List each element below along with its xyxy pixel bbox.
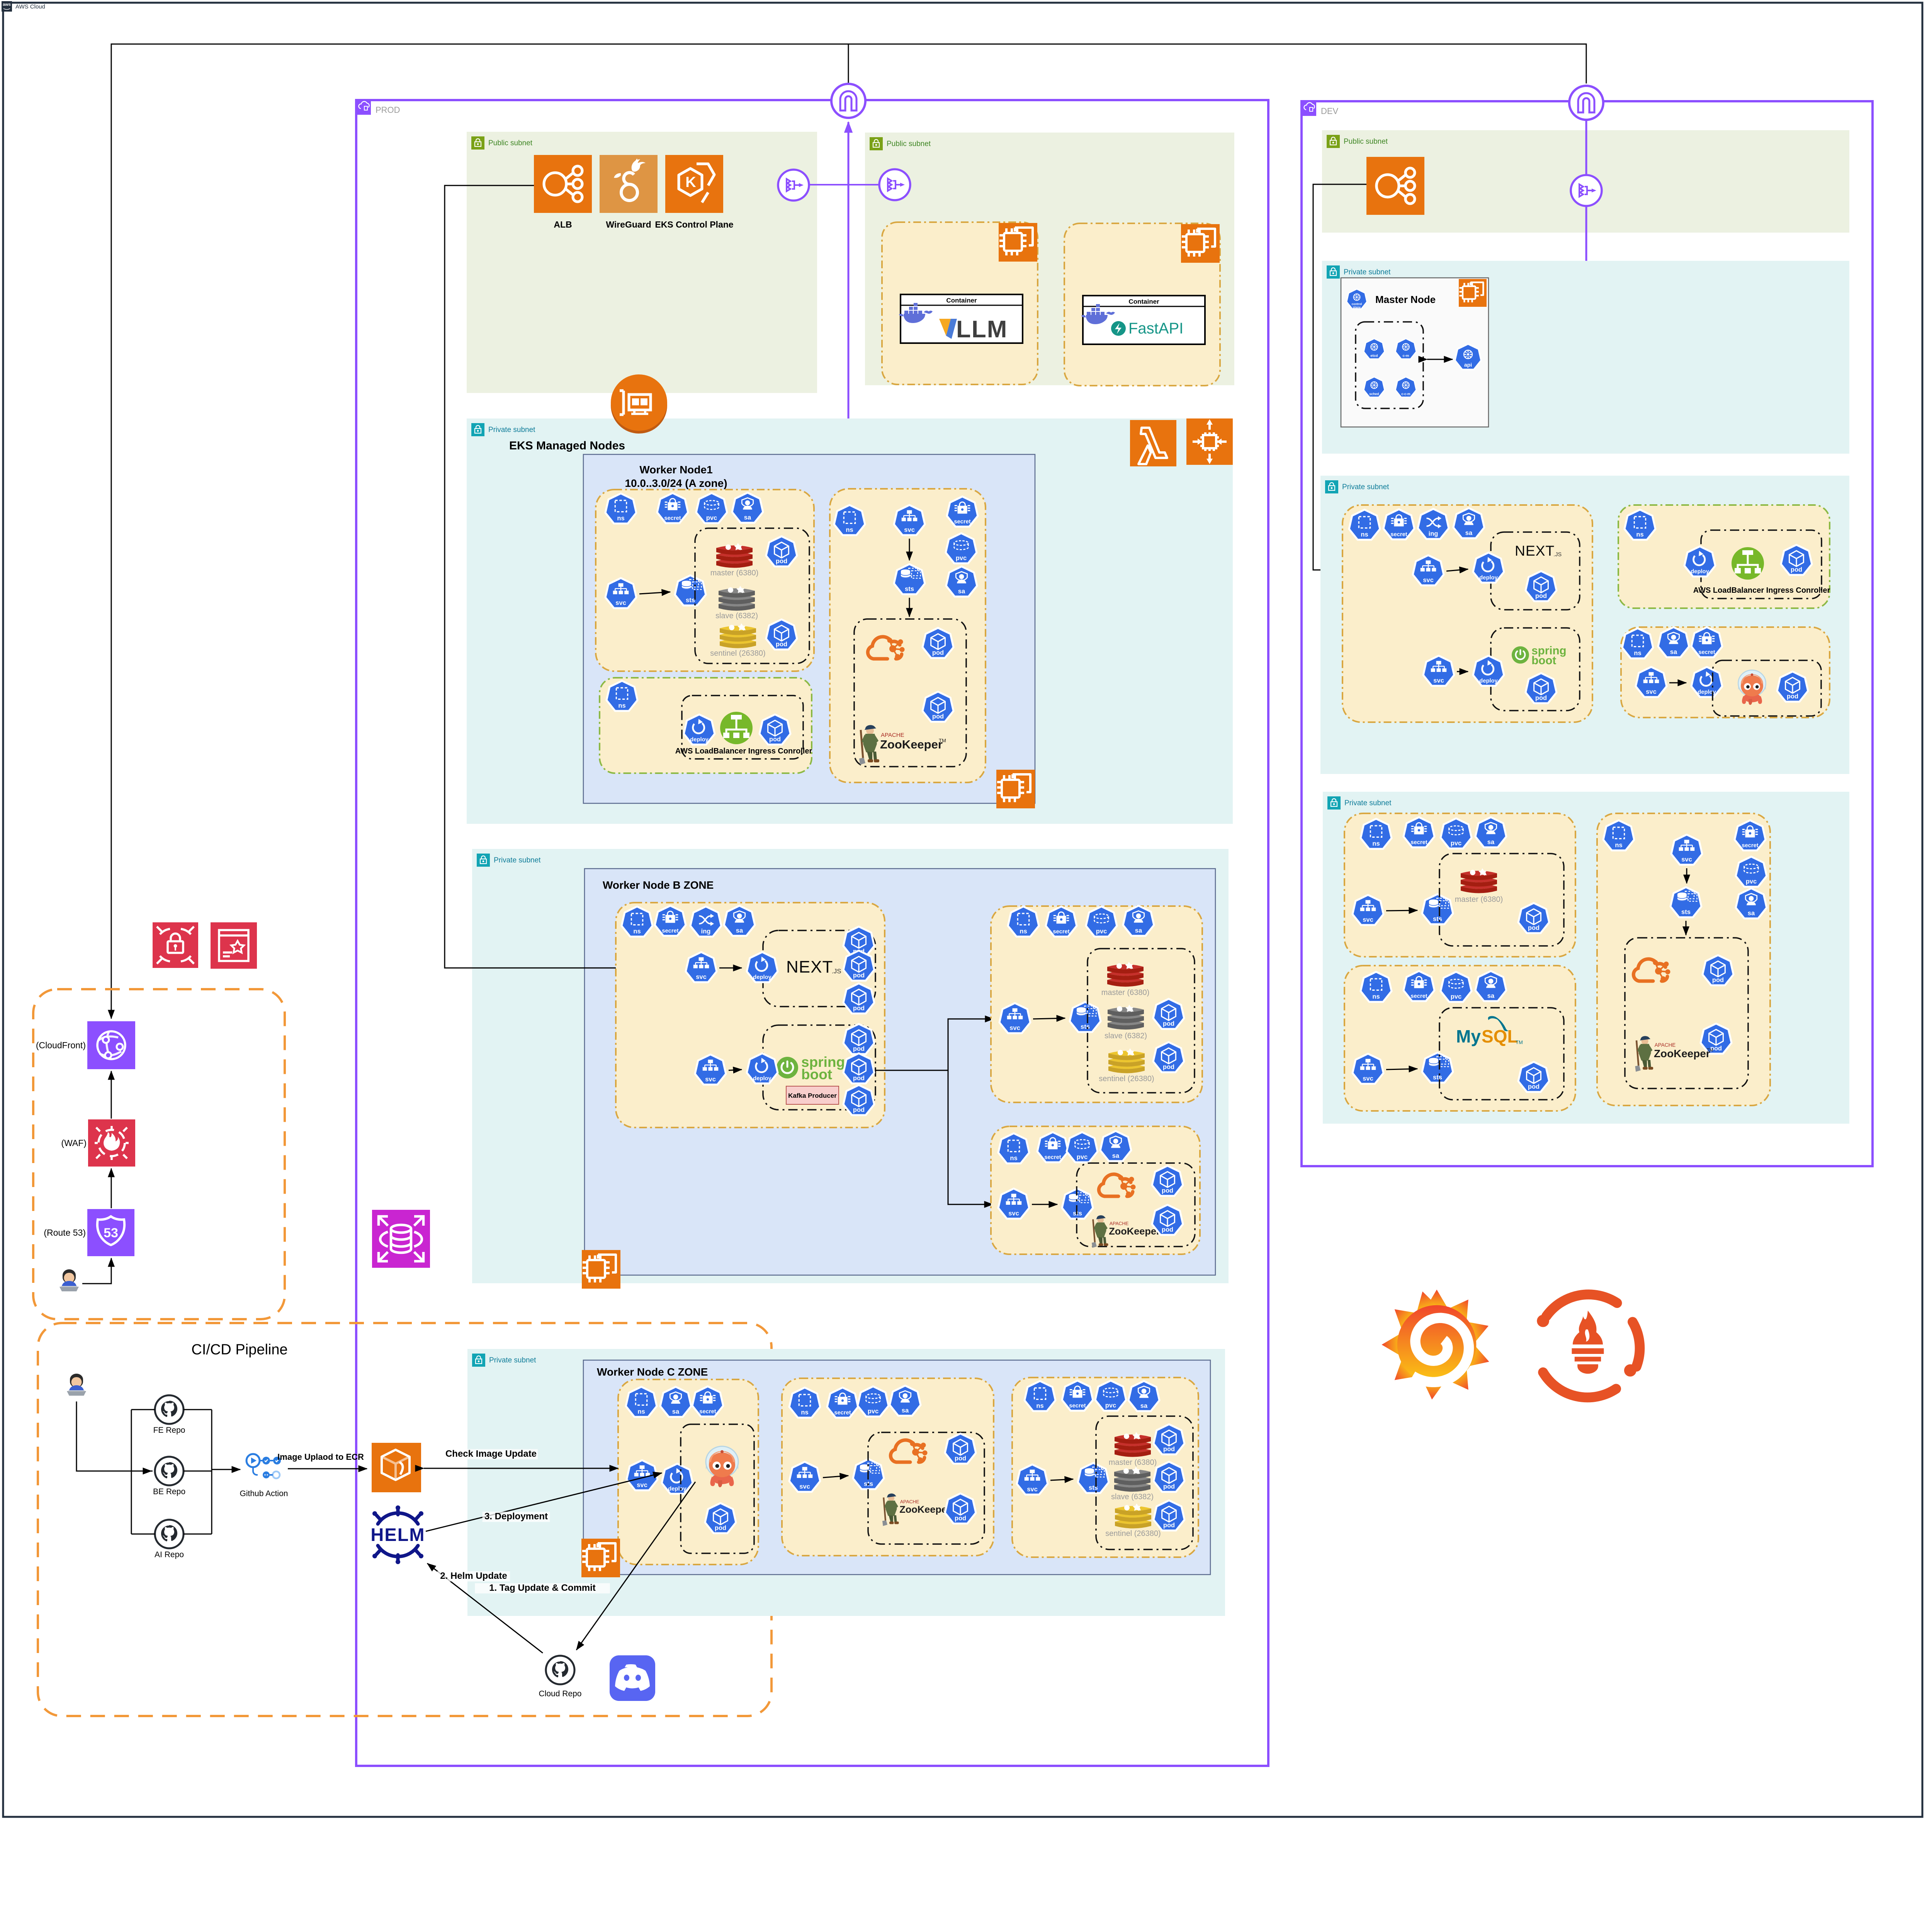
svg-text:BE Repo: BE Repo [153,1487,185,1496]
svg-text:Worker Node1: Worker Node1 [639,464,712,476]
svg-text:ALB: ALB [554,219,572,230]
svg-text:master (6380): master (6380) [710,569,759,577]
svg-text:Container: Container [946,297,977,304]
svg-text:Private subnet: Private subnet [1344,799,1392,807]
svg-text:sentinel (26380): sentinel (26380) [710,649,765,658]
svg-text:Kafka Producer: Kafka Producer [788,1092,837,1099]
svg-text:master (6380): master (6380) [1109,1458,1157,1467]
svg-text:Public subnet: Public subnet [488,139,533,147]
svg-text:Github Action: Github Action [240,1489,288,1498]
svg-text:Worker Node C ZONE: Worker Node C ZONE [597,1366,708,1378]
svg-text:sentinel (26380): sentinel (26380) [1099,1075,1154,1083]
svg-text:EKS Control Plane: EKS Control Plane [655,219,733,230]
svg-text:FE Repo: FE Repo [153,1426,185,1435]
svg-text:master (6380): master (6380) [1455,895,1503,904]
svg-text:10.0..3.0/24 (A zone): 10.0..3.0/24 (A zone) [625,477,727,489]
svg-text:AWS LoadBalancer Ingress Conro: AWS LoadBalancer Ingress Conroller [675,747,812,755]
svg-text:1. Tag Update & Commit: 1. Tag Update & Commit [489,1583,596,1593]
svg-text:Public subnet: Public subnet [1344,138,1388,146]
svg-text:Worker Node B ZONE: Worker Node B ZONE [603,879,714,891]
svg-text:DEV: DEV [1321,106,1339,116]
svg-text:EKS Managed Nodes: EKS Managed Nodes [509,439,625,452]
svg-text:Check Image Update: Check Image Update [445,1449,537,1459]
svg-text:Public subnet: Public subnet [887,140,931,148]
svg-text:sentinel (26380): sentinel (26380) [1105,1529,1161,1538]
svg-text:slave (6382): slave (6382) [1105,1032,1147,1040]
svg-text:AWS LoadBalancer Ingress Conro: AWS LoadBalancer Ingress Conroller [1693,586,1830,595]
svg-text:(Route 53): (Route 53) [44,1228,86,1238]
svg-text:slave (6382): slave (6382) [715,612,758,620]
svg-text:Master Node: Master Node [1375,294,1436,305]
svg-text:slave (6382): slave (6382) [1111,1493,1154,1501]
svg-text:Private subnet: Private subnet [494,856,541,864]
svg-text:Private subnet: Private subnet [1342,483,1389,491]
svg-text:2. Helm Update: 2. Helm Update [440,1571,507,1581]
svg-text:Private subnet: Private subnet [488,426,535,434]
svg-text:Private subnet: Private subnet [489,1356,536,1364]
svg-text:(CloudFront): (CloudFront) [36,1040,86,1050]
svg-text:Container: Container [1128,298,1159,305]
svg-text:Private subnet: Private subnet [1344,268,1391,276]
svg-text:(WAF): (WAF) [61,1138,87,1148]
svg-text:Cloud Repo: Cloud Repo [539,1689,582,1698]
svg-text:aws: aws [3,2,11,7]
svg-text:Image Uplaod to ECR: Image Uplaod to ECR [277,1452,364,1462]
svg-text:CI/CD Pipeline: CI/CD Pipeline [191,1342,287,1358]
svg-text:AI Repo: AI Repo [155,1550,184,1559]
svg-text:master (6380): master (6380) [1101,988,1150,997]
svg-text:AWS Cloud: AWS Cloud [15,3,45,10]
svg-text:WireGuard: WireGuard [606,219,651,230]
svg-text:PROD: PROD [376,105,400,115]
svg-text:3. Deployment: 3. Deployment [484,1511,548,1522]
